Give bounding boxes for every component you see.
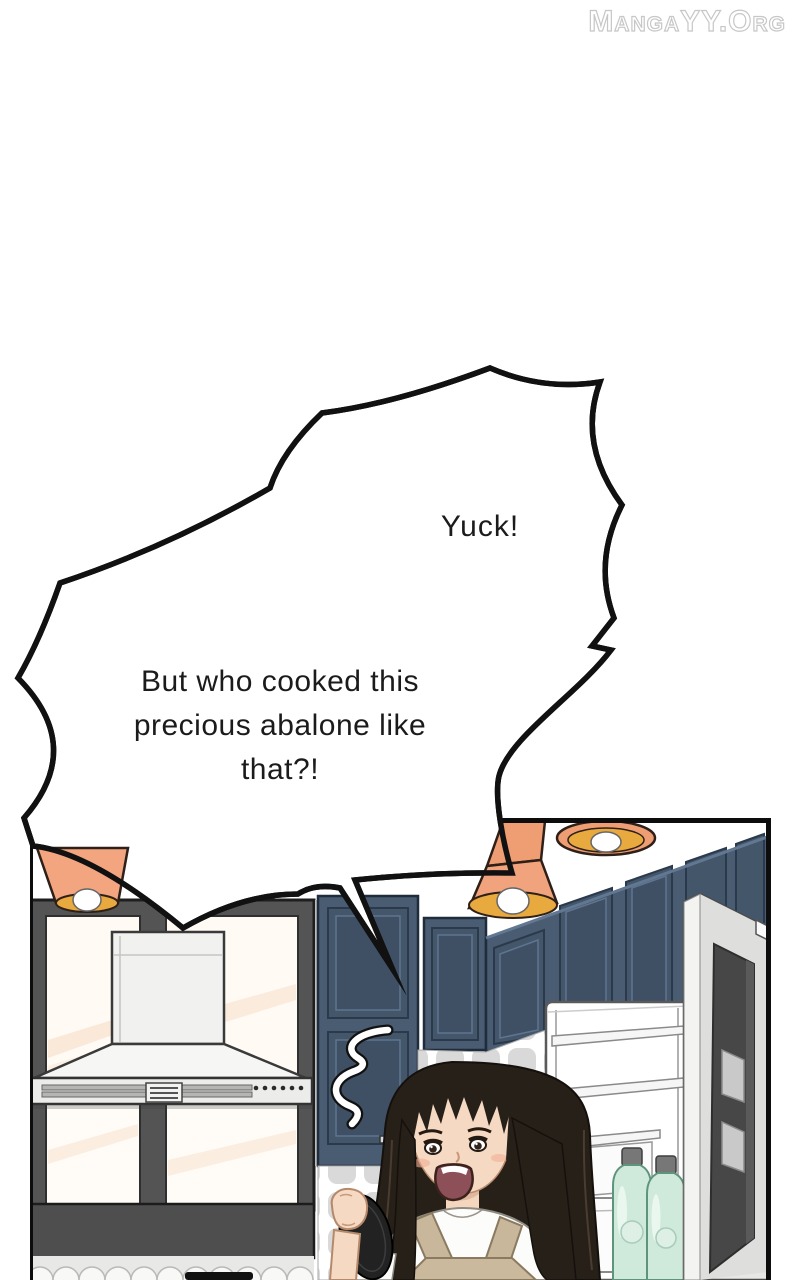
fridge-door bbox=[684, 894, 772, 1280]
counter-object bbox=[185, 1272, 253, 1280]
artwork bbox=[0, 0, 800, 1280]
panel-border-right bbox=[766, 818, 772, 1280]
speech-text-exclamation: Yuck! bbox=[400, 510, 560, 544]
mouth-open bbox=[435, 1164, 472, 1200]
speech-text-line-3: that?! bbox=[88, 748, 472, 792]
watermark-logo: MangaYY.Org bbox=[588, 5, 786, 39]
speech-text-paragraph: But who cooked this precious abalone lik… bbox=[88, 660, 472, 792]
scallop-tiles bbox=[27, 1256, 314, 1280]
panel-border-top bbox=[500, 818, 771, 823]
manga-page: MangaYY.Org Yuck! But who cooked this pr… bbox=[0, 0, 800, 1280]
pendant-lamp-right bbox=[557, 821, 655, 855]
speech-text-line-1: But who cooked this bbox=[88, 660, 472, 704]
speech-text-line-2: precious abalone like bbox=[88, 704, 472, 748]
panel-border-left bbox=[28, 820, 33, 1280]
